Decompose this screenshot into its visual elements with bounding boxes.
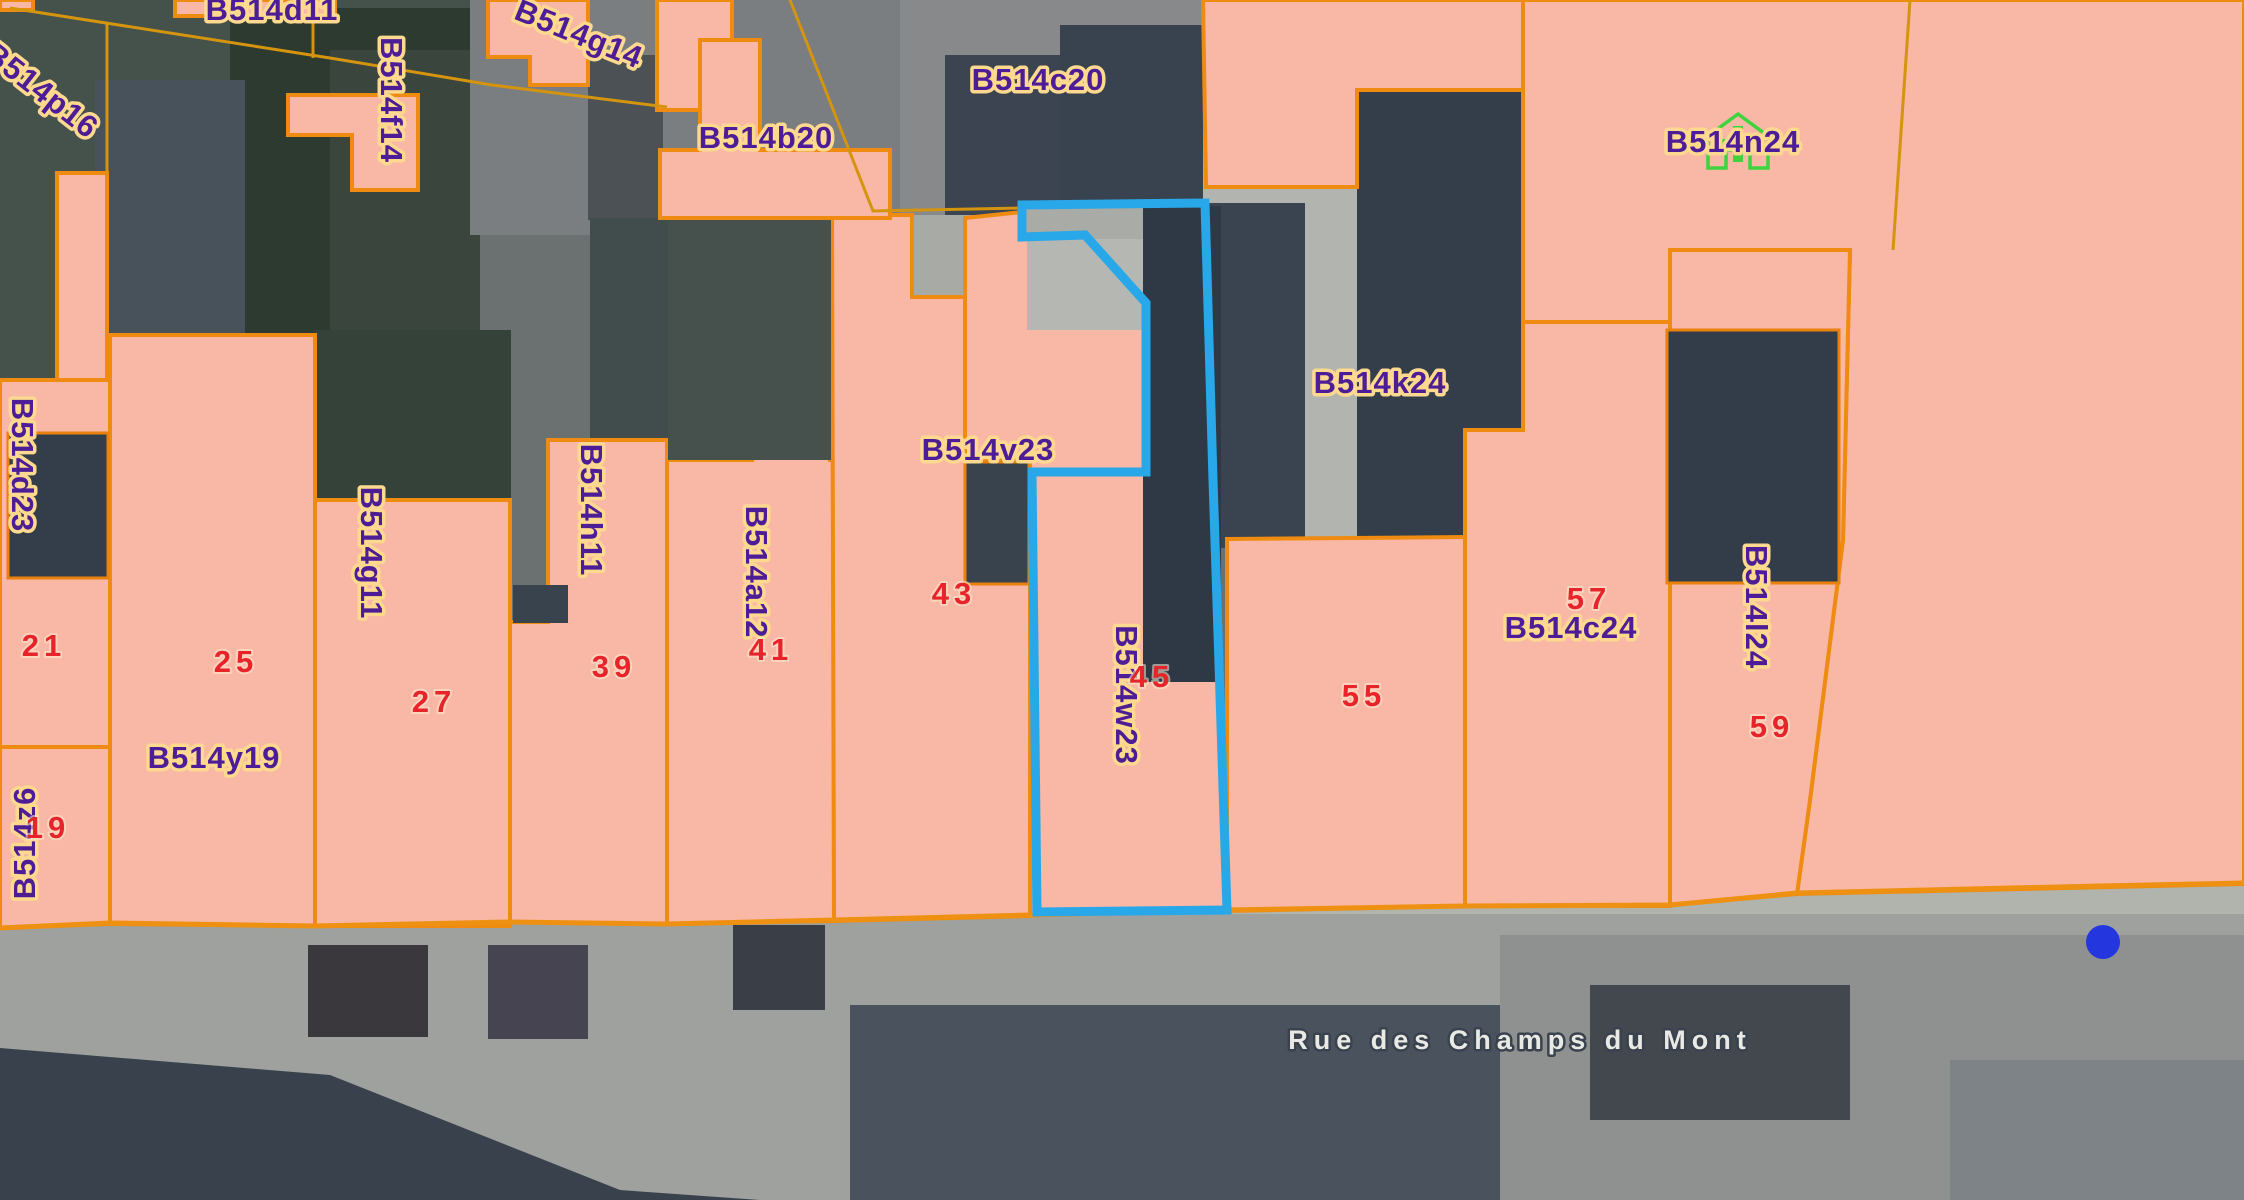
house-number-label: 45	[1130, 659, 1174, 694]
parcel-label: B514l24	[1739, 545, 1774, 669]
house-number-label: 27	[412, 684, 456, 719]
parcel-label: B514w23	[1109, 625, 1144, 765]
parcel-polygon[interactable]	[57, 173, 107, 398]
parcel-label: B514b20	[699, 120, 834, 155]
street-name-label: Rue des Champs du Mont	[1288, 1025, 1752, 1055]
parcel-label: B514y19	[148, 740, 281, 775]
map-marker[interactable]	[2086, 925, 2120, 959]
house-number-label: 57	[1567, 581, 1611, 616]
map-canvas[interactable]: B514d11B514g14B514p16B514f14B514b20B514c…	[0, 0, 2244, 1200]
house-number-label: 55	[1342, 678, 1386, 713]
house-number-label: 39	[592, 649, 636, 684]
parked-car	[733, 925, 825, 1010]
house-number-label: 43	[932, 576, 976, 611]
parcel-label: B514g11	[354, 487, 389, 620]
parked-car	[488, 945, 588, 1039]
parcel-polygon-b514y19[interactable]	[110, 335, 315, 926]
parked-car	[308, 945, 428, 1037]
parcel-polygon-55[interactable]	[1227, 537, 1465, 911]
parcel-label: B514f14	[374, 37, 409, 163]
parcel-label: B514k24	[1314, 365, 1447, 400]
parcel-label: B514d11	[206, 0, 339, 27]
parcel-label: B514c20	[972, 62, 1105, 97]
parcel-label: B514n24	[1666, 124, 1801, 159]
parcel-label: B514v23	[922, 432, 1055, 467]
house-number-label: 19	[26, 810, 70, 845]
parcel-label: B514a12	[739, 506, 774, 639]
house-number-label: 21	[22, 628, 66, 663]
house-number-label: 25	[214, 644, 258, 679]
parcel-label: B514d23	[5, 398, 40, 533]
house-number-label: 41	[749, 632, 793, 667]
parcel-label: B514h11	[574, 444, 609, 577]
house-number-label: 59	[1750, 709, 1794, 744]
